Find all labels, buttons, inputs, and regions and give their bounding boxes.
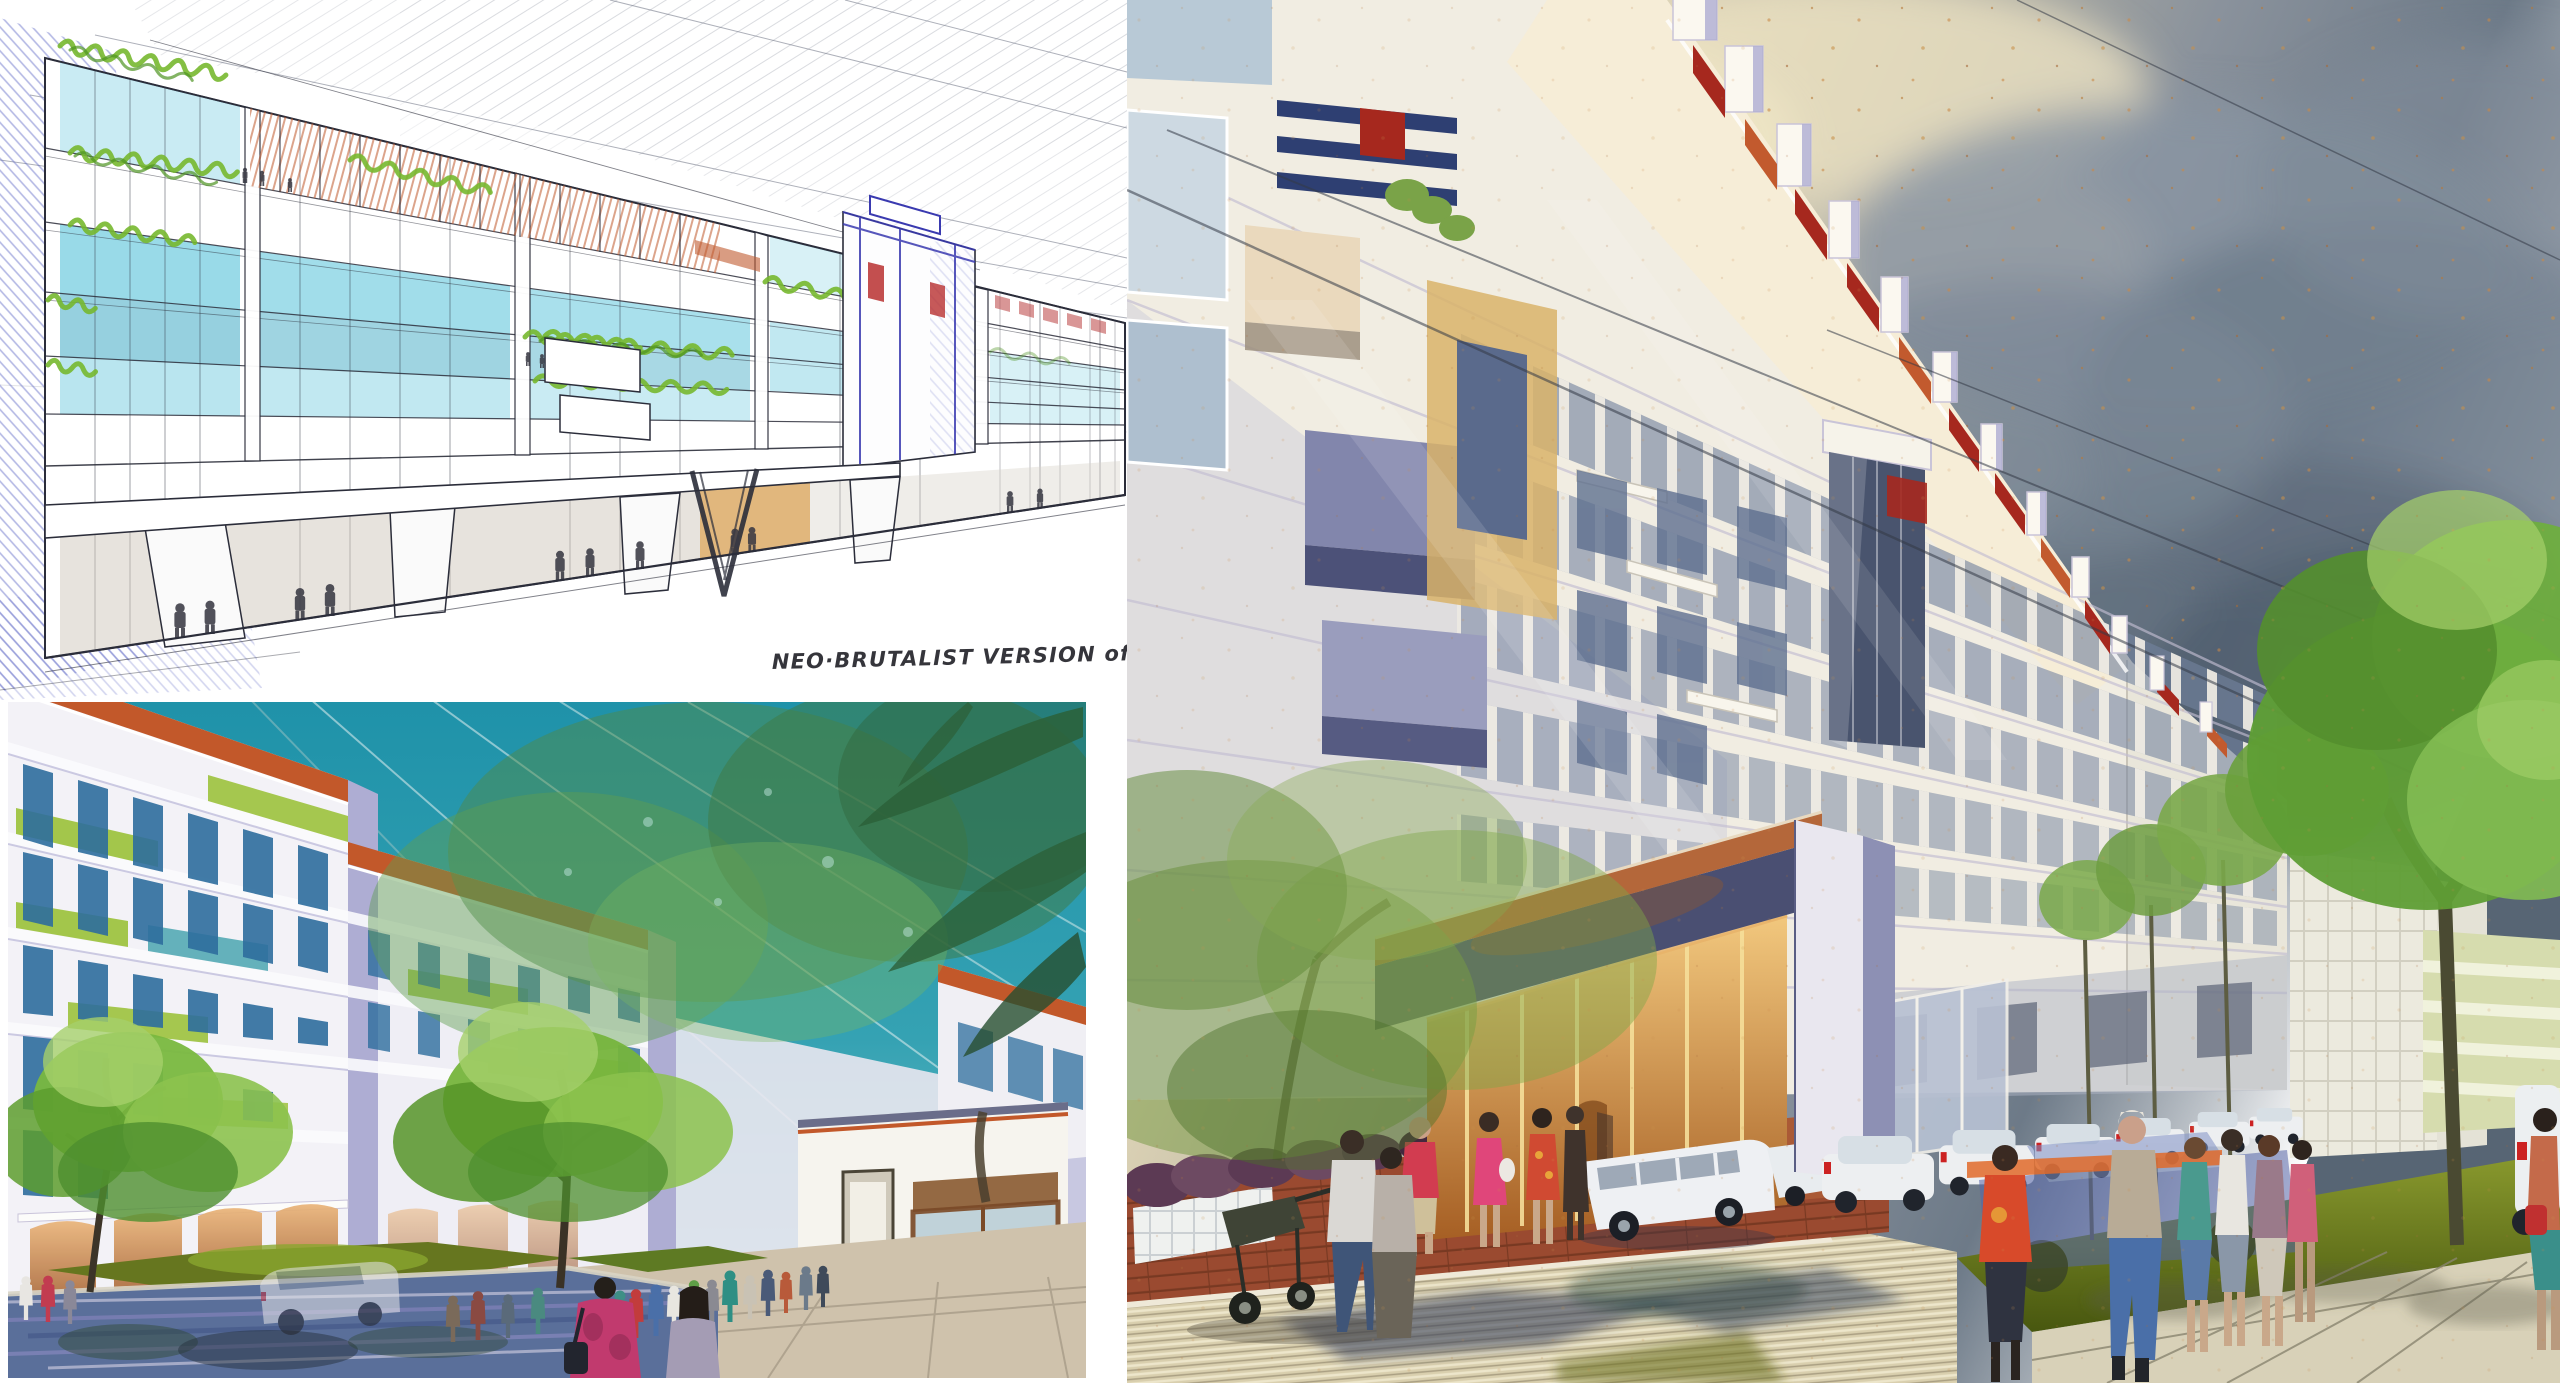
architectural-rendering-collage: NEO·BRUTALIST VERSION of ART·DECO (0, 0, 2560, 1383)
panel-main-rendering (1127, 0, 2560, 1383)
panel-concept-sketch (0, 0, 1127, 700)
panel-street-scene (8, 702, 1086, 1378)
grain-overlay (1127, 0, 2560, 1383)
handwritten-annotation: NEO·BRUTALIST VERSION of ART·DECO (772, 642, 1103, 694)
